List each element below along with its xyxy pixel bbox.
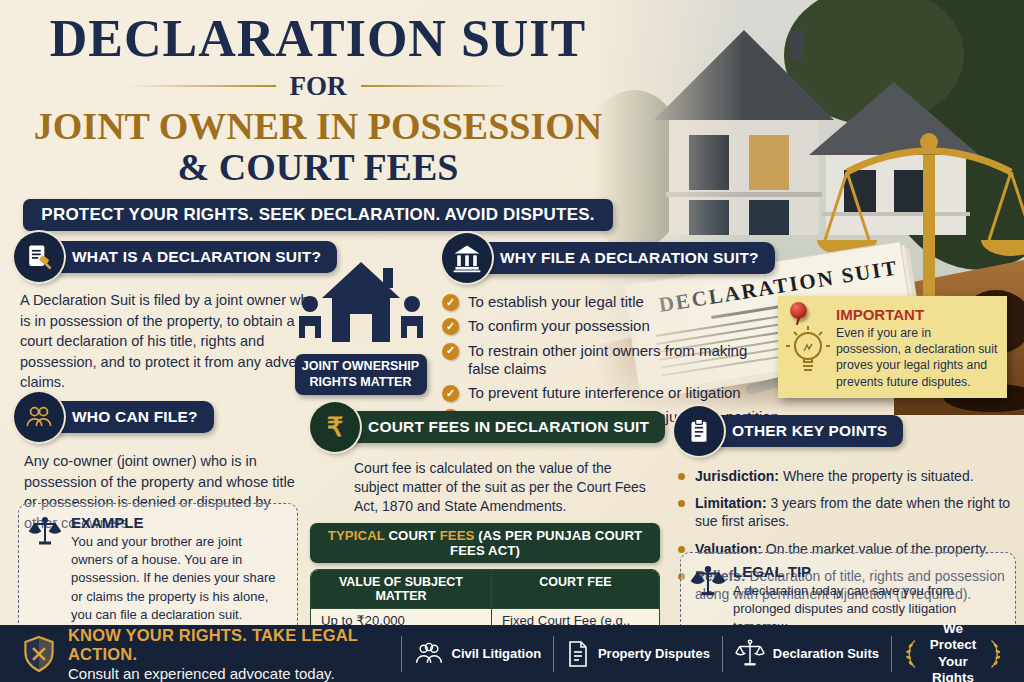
- footer-tagline: KNOW YOUR RIGHTS. TAKE LEGAL ACTION.: [68, 626, 377, 664]
- title-line-3: & COURT FEES: [18, 147, 618, 189]
- gold-rule-left: [126, 85, 276, 87]
- divider: [553, 636, 554, 672]
- example-heading: EXAMPLE: [71, 514, 285, 531]
- divider: [891, 636, 892, 672]
- check-icon: ✓: [442, 318, 459, 335]
- what-is-body: A Declaration Suit is filed by a joint o…: [14, 290, 322, 393]
- shield-logo-icon: [22, 632, 56, 676]
- lightbulb-icon: [784, 324, 832, 388]
- footer-badge-we-protect: We ProtectYour Rights: [904, 621, 1002, 682]
- column-header: VALUE OF SUBJECT MATTER: [311, 570, 492, 608]
- important-heading: IMPORTANT: [836, 306, 999, 323]
- gold-rule-right: [361, 85, 511, 87]
- footer-item-declaration-suits: Declaration Suits: [735, 639, 879, 669]
- list-item: ✓To restrain other joint owners from mak…: [442, 342, 782, 379]
- title-line-1: DECLARATION SUIT: [18, 12, 618, 67]
- section-heading: OTHER KEY POINTS: [704, 415, 903, 447]
- document-icon: [566, 640, 590, 668]
- bullet-dot: [678, 546, 685, 553]
- example-body: You and your brother are joint owners of…: [71, 533, 285, 624]
- tagline-banner: PROTECT YOUR RIGHTS. SEEK DECLARATION. A…: [23, 199, 612, 231]
- bullet-dot: [678, 500, 685, 507]
- people-icon: [414, 641, 444, 667]
- example-box: EXAMPLE You and your brother are joint o…: [18, 503, 298, 635]
- footer-bar: KNOW YOUR RIGHTS. TAKE LEGAL ACTION. Con…: [0, 625, 1024, 682]
- divider: [722, 636, 723, 672]
- check-icon: ✓: [442, 385, 459, 402]
- push-pin-icon: [790, 302, 807, 319]
- footer-item-civil-litigation: Civil Litigation: [414, 641, 542, 667]
- title-for-row: FOR: [18, 71, 618, 102]
- document-gavel-icon: [14, 232, 64, 282]
- list-item: ✓To confirm your possession: [442, 317, 782, 335]
- clipboard-icon: [674, 406, 724, 456]
- title-for: FOR: [290, 71, 347, 102]
- courthouse-icon: [442, 233, 492, 283]
- section-what-is: WHAT IS A DECLARATION SUIT? A Declaratio…: [14, 232, 322, 393]
- important-sticky-note: IMPORTANT Even if you are in possession,…: [778, 296, 1007, 398]
- footer-subline: Consult an experienced advocate today.: [68, 665, 377, 682]
- list-item: Limitation: 3 years from the date when t…: [678, 494, 1018, 530]
- list-item: Jurisdiction: Where the property is situ…: [678, 467, 1018, 485]
- court-fees-intro: Court fee is calculated on the value of …: [354, 459, 654, 516]
- rupee-icon: ₹: [310, 402, 360, 452]
- list-item: ✓To establish your legal title: [442, 293, 782, 311]
- section-heading: COURT FEES IN DECLARATION SUIT: [340, 411, 665, 443]
- badge-line-2: RIGHTS MATTER: [299, 375, 423, 391]
- fee-table-banner: TYPICAL COURT FEES (AS PER PUNJAB COURT …: [310, 523, 660, 563]
- joint-ownership-graphic: JOINT OWNERSHIP RIGHTS MATTER: [283, 256, 438, 395]
- section-heading: WHY FILE A DECLARATION SUIT?: [472, 242, 775, 274]
- legal-tip-heading: LEGAL TIP: [733, 563, 1003, 580]
- house-people-icon: [286, 256, 436, 348]
- laurel-left-icon: [904, 636, 917, 672]
- badge-line-1: JOINT OWNERSHIP: [299, 359, 423, 375]
- section-heading: WHO CAN FILE?: [44, 401, 214, 433]
- check-icon: ✓: [442, 343, 459, 360]
- list-item: ✓To prevent future interference or litig…: [442, 384, 782, 402]
- laurel-right-icon: [989, 636, 1002, 672]
- scales-icon: [735, 639, 765, 669]
- footer-tagline-block: KNOW YOUR RIGHTS. TAKE LEGAL ACTION. Con…: [68, 626, 377, 682]
- important-body: Even if you are in possession, a declara…: [836, 325, 999, 390]
- title-block: DECLARATION SUIT FOR JOINT OWNER IN POSS…: [18, 12, 618, 231]
- people-icon: [14, 392, 64, 442]
- joint-ownership-badge: JOINT OWNERSHIP RIGHTS MATTER: [295, 354, 427, 395]
- footer-item-property-disputes: Property Disputes: [566, 640, 710, 668]
- scales-icon: [29, 514, 63, 624]
- check-icon: ✓: [442, 294, 459, 311]
- table-header-row: VALUE OF SUBJECT MATTER COURT FEE: [311, 570, 659, 608]
- infographic-poster: DECLARATION SUIT DECLARATION SUIT FOR: [0, 0, 1024, 682]
- column-header: COURT FEE: [492, 570, 659, 608]
- title-line-2: JOINT OWNER IN POSSESSION: [18, 106, 618, 148]
- divider: [401, 636, 402, 672]
- bullet-dot: [678, 473, 685, 480]
